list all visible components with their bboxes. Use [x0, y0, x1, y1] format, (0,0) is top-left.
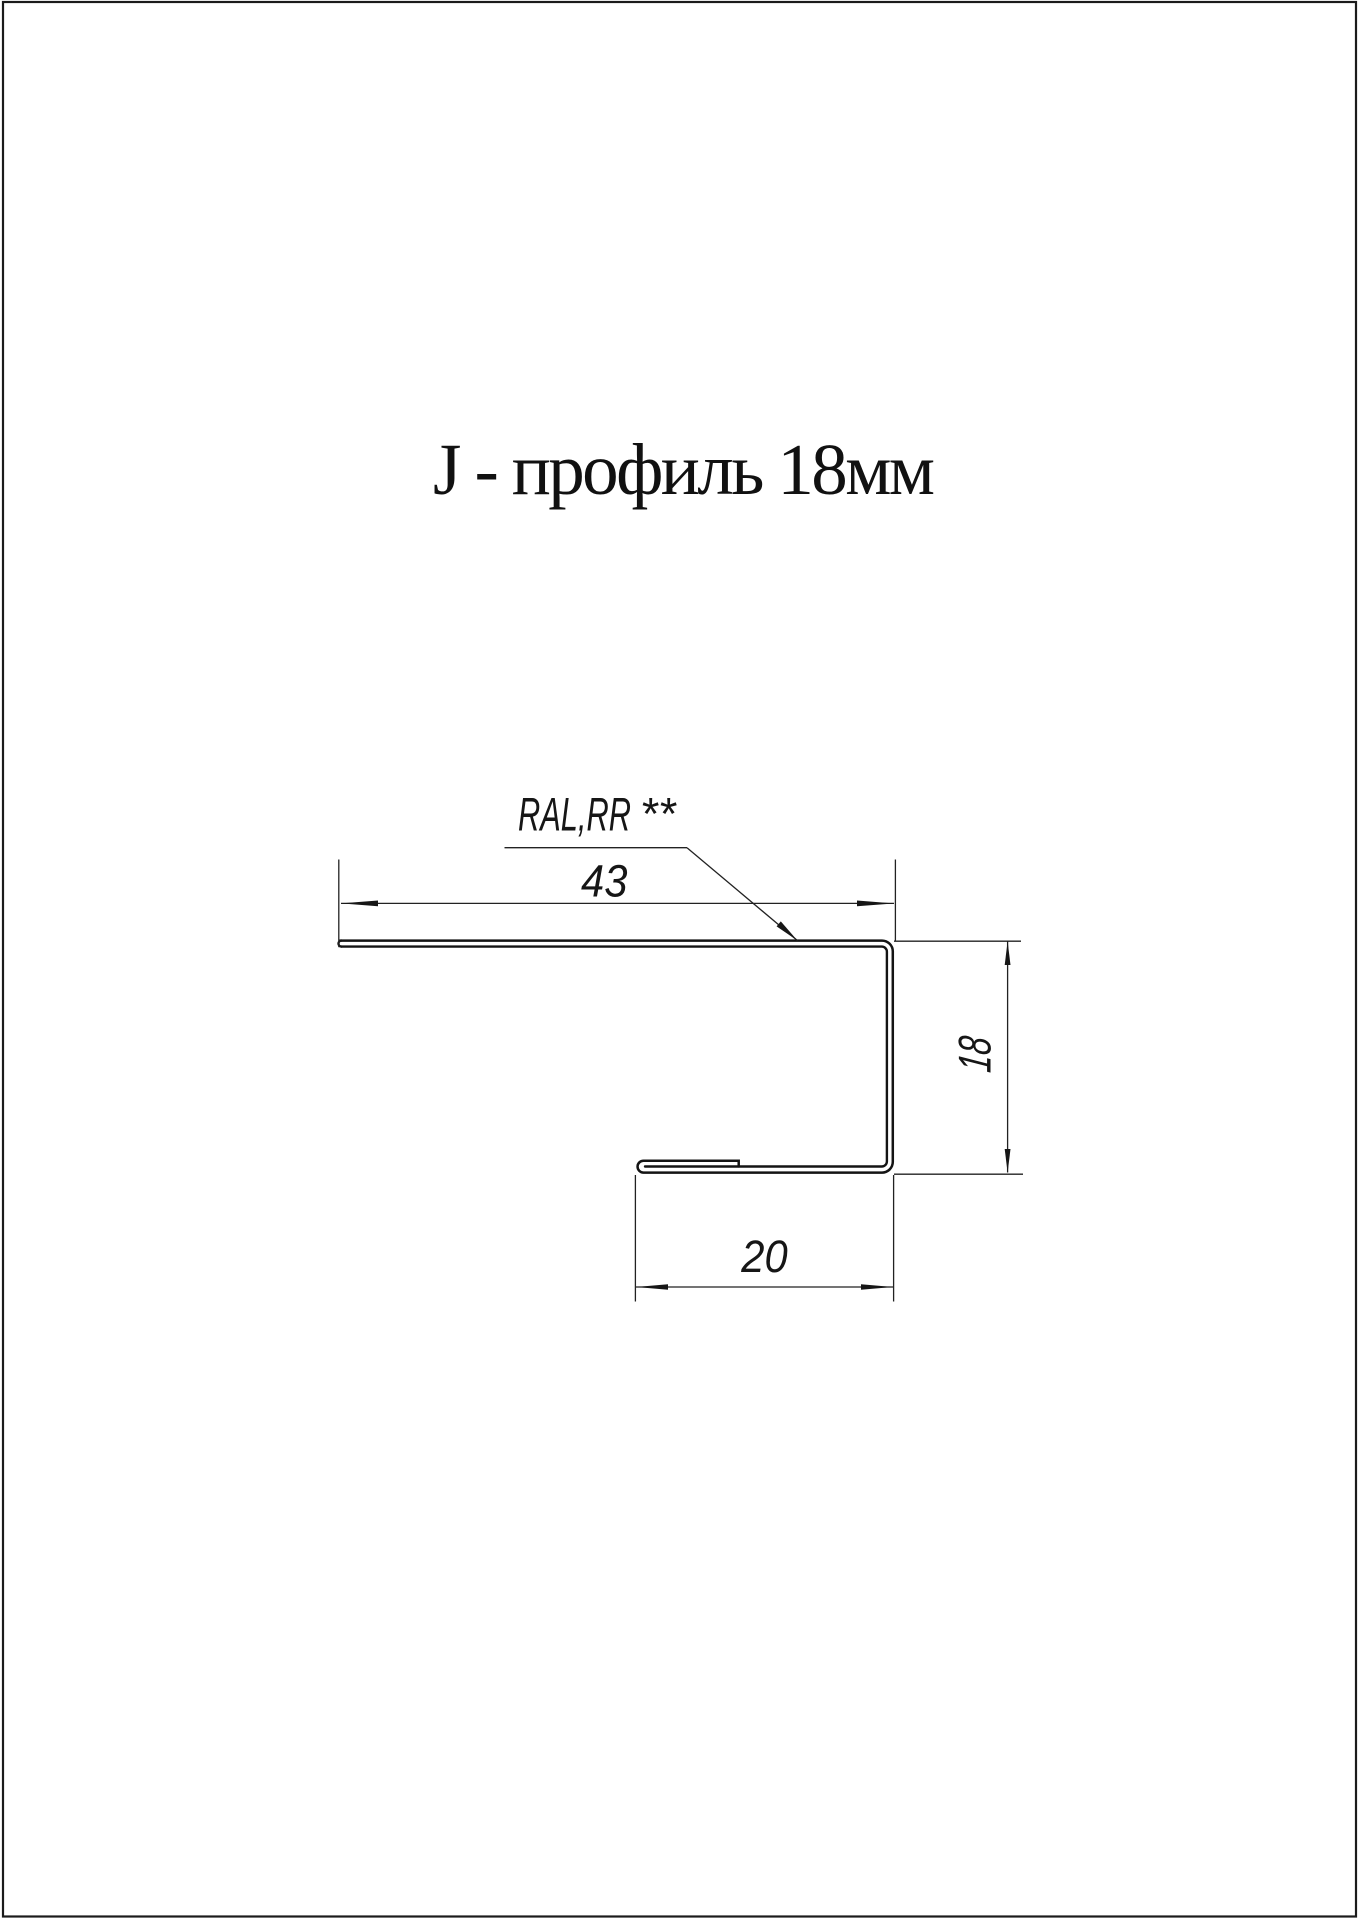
svg-text:*: *: [640, 789, 659, 840]
svg-text:J - профиль 18мм: J - профиль 18мм: [433, 429, 935, 510]
svg-text:43: 43: [581, 856, 627, 907]
svg-text:RAL,RR: RAL,RR: [518, 789, 631, 842]
svg-text:*: *: [658, 789, 677, 840]
svg-text:18: 18: [949, 1033, 1001, 1075]
svg-text:20: 20: [740, 1231, 787, 1282]
